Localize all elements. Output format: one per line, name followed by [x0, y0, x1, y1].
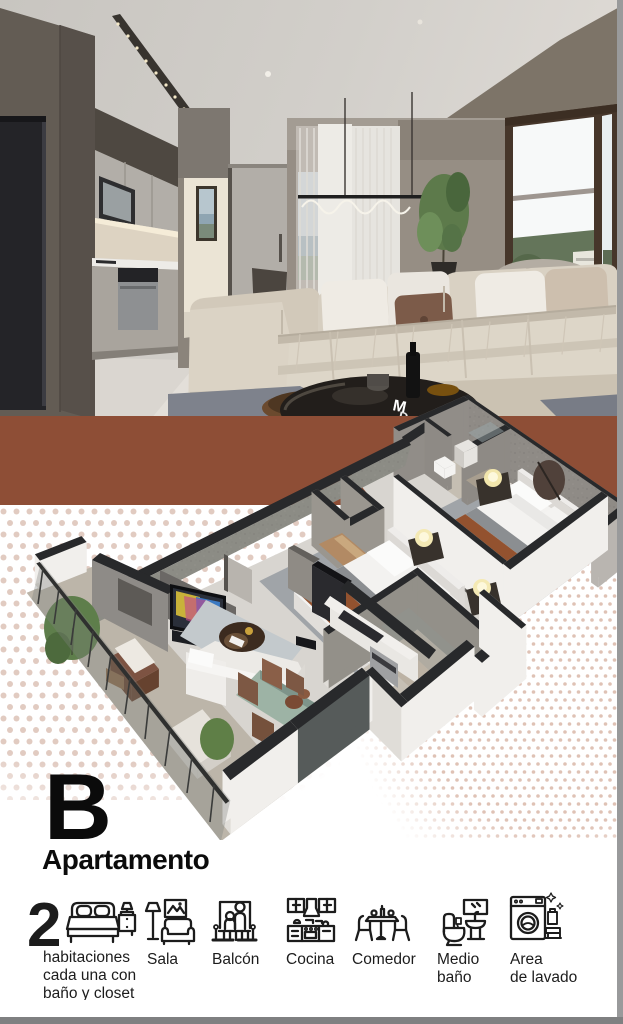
svg-text:Area: Area: [510, 951, 543, 968]
svg-text:baño: baño: [437, 969, 471, 986]
svg-text:cada una con: cada una con: [43, 967, 136, 984]
svg-text:habitaciones: habitaciones: [43, 949, 130, 966]
svg-text:baño y closet: baño y closet: [43, 985, 135, 1000]
svg-text:de lavado: de lavado: [510, 969, 577, 986]
svg-text:Cocina: Cocina: [286, 951, 335, 968]
svg-text:Comedor: Comedor: [352, 951, 416, 968]
svg-text:Medio: Medio: [437, 951, 479, 968]
svg-text:Sala: Sala: [147, 951, 178, 968]
svg-text:Balcón: Balcón: [212, 951, 259, 968]
